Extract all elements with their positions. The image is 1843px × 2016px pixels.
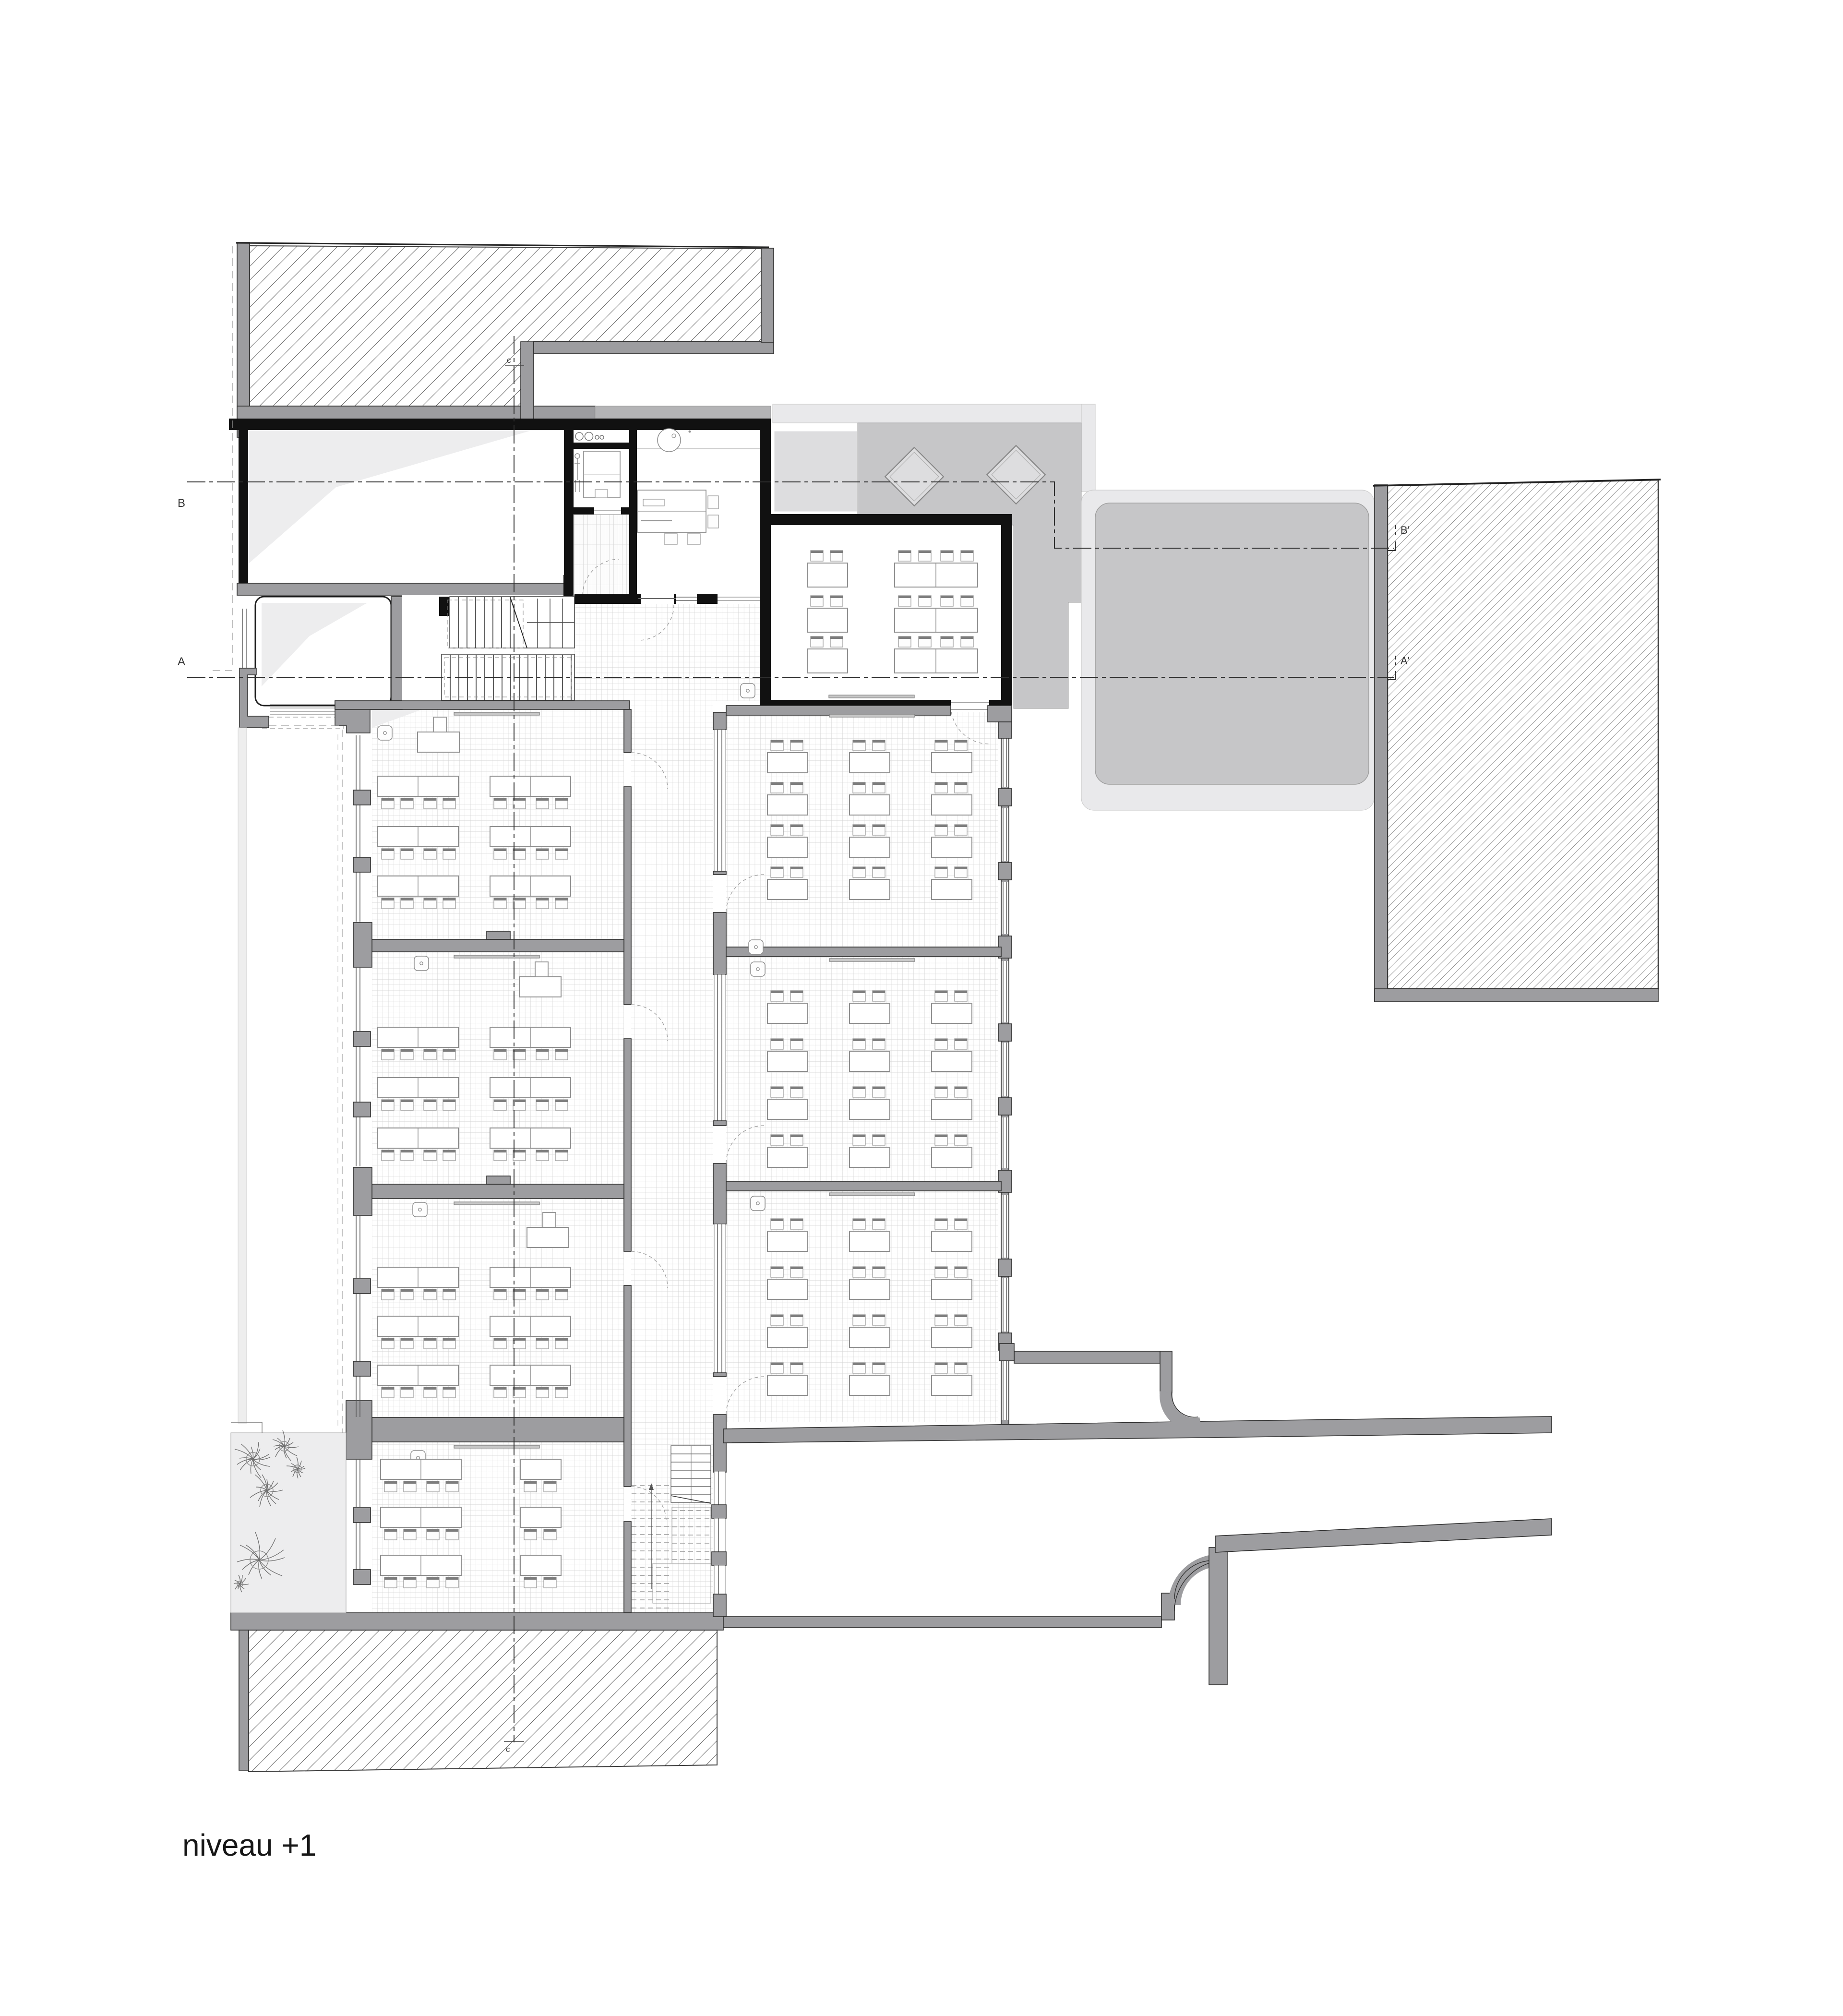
svg-text:B': B' xyxy=(1400,524,1410,536)
svg-text:B: B xyxy=(178,497,185,510)
svg-text:c: c xyxy=(506,1745,510,1754)
svg-text:A': A' xyxy=(1400,655,1410,667)
svg-text:A: A xyxy=(178,655,185,668)
svg-text:c: c xyxy=(507,356,511,365)
svg-text:niveau +1: niveau +1 xyxy=(182,1828,316,1862)
